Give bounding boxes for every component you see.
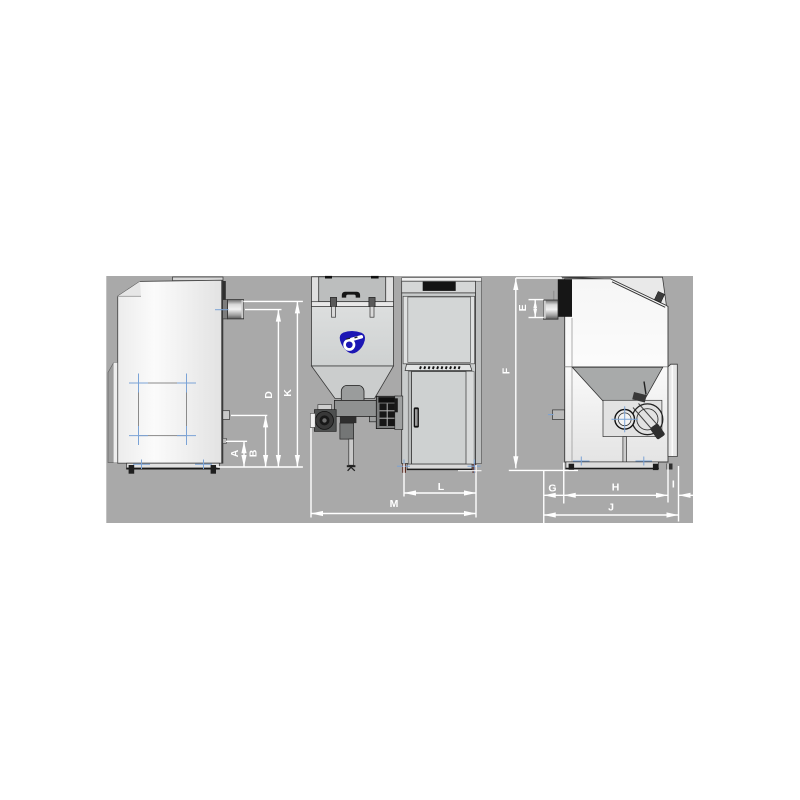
svg-text:K: K (282, 389, 294, 397)
svg-text:J: J (608, 501, 614, 513)
svg-text:D: D (263, 391, 275, 399)
svg-text:A: A (229, 449, 241, 457)
svg-text:H: H (612, 481, 620, 493)
svg-text:L: L (438, 481, 445, 493)
svg-text:B: B (248, 449, 260, 457)
svg-text:G: G (548, 482, 556, 494)
svg-text:M: M (390, 498, 399, 510)
svg-text:F: F (501, 367, 513, 374)
svg-text:E: E (517, 304, 529, 311)
svg-text:I: I (672, 479, 675, 491)
